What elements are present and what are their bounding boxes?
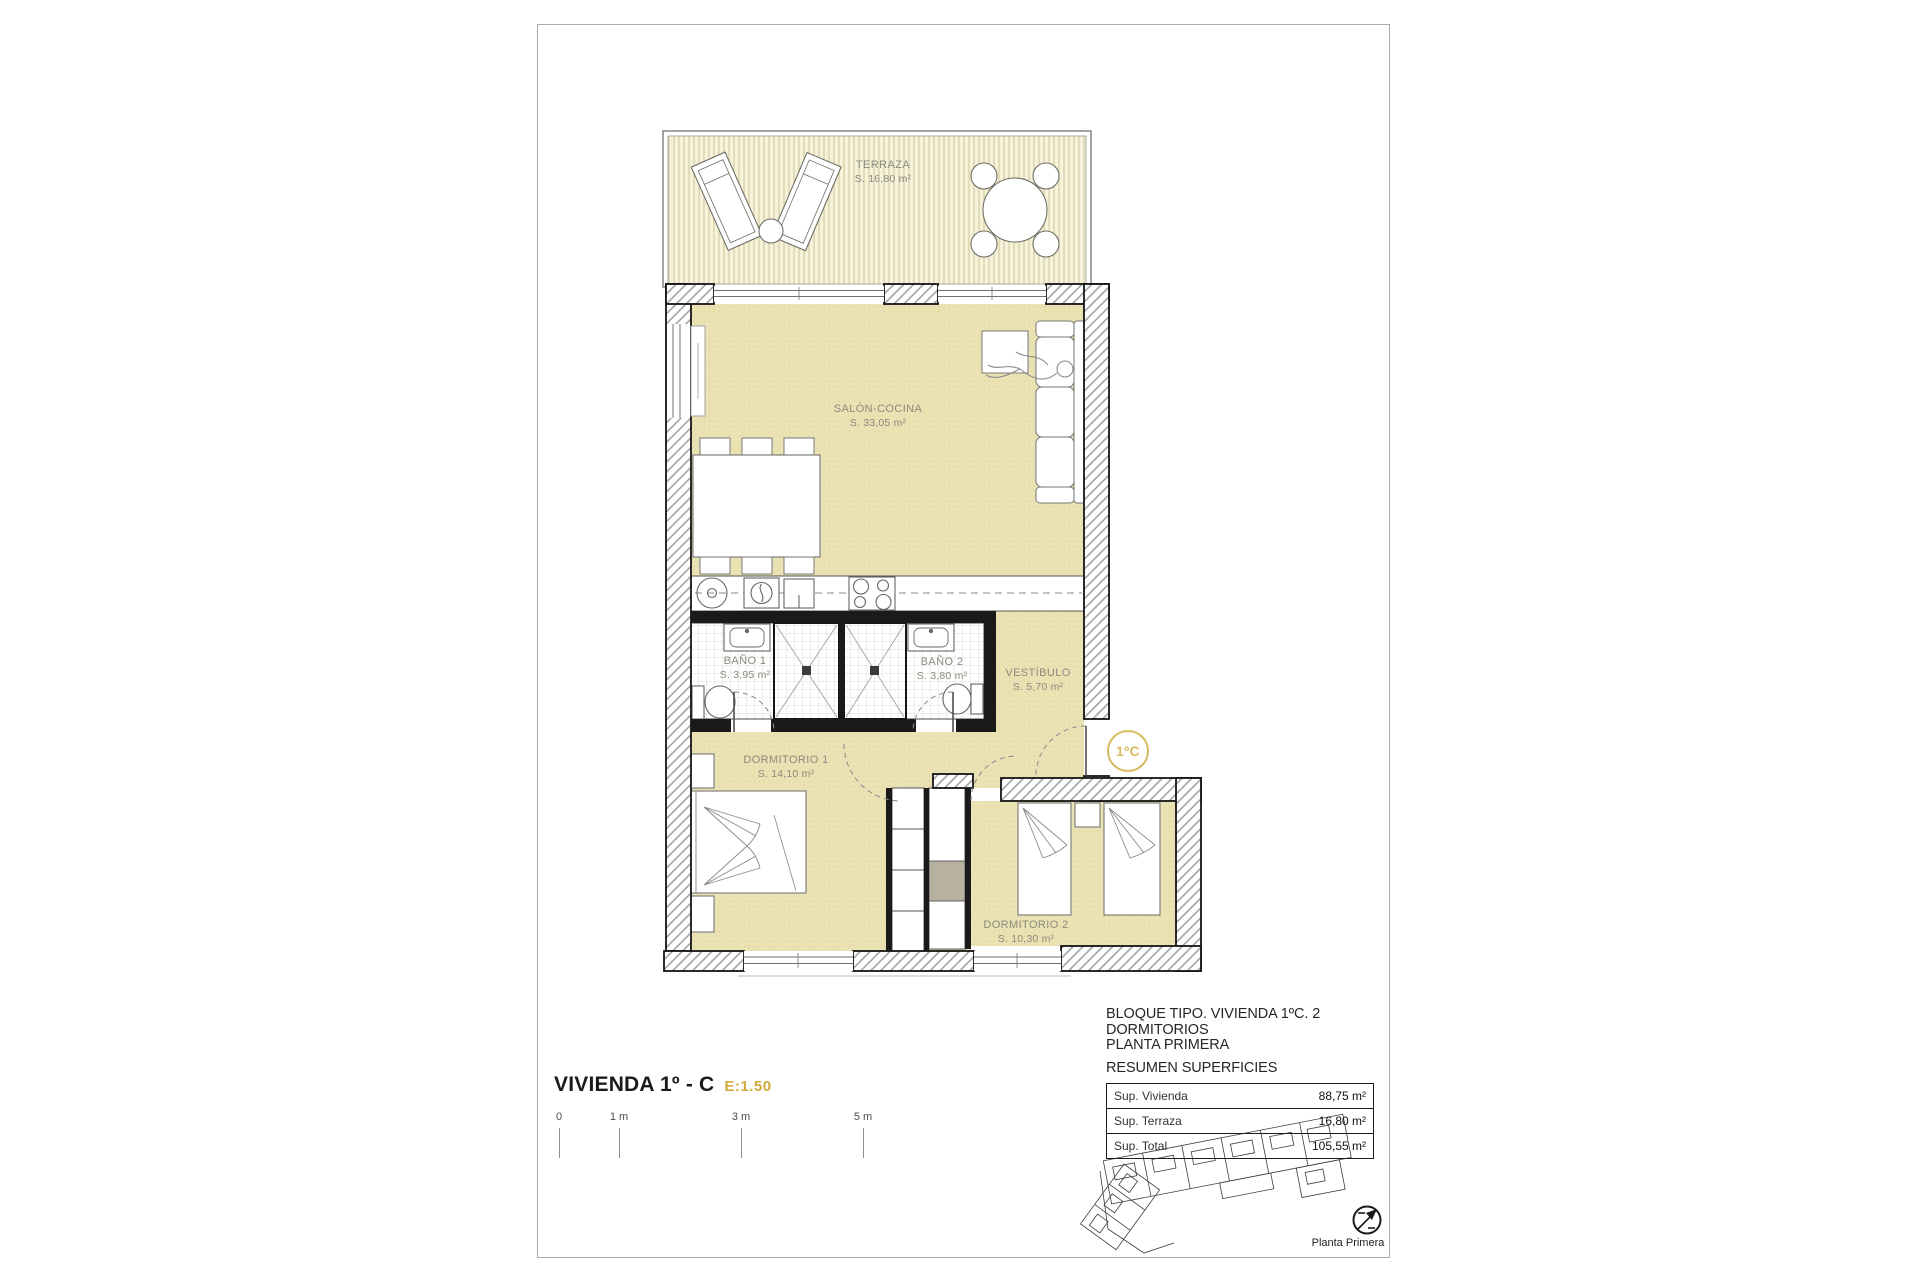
title-block: VIVIENDA 1º - CE:1.50 [554,1073,772,1097]
scale-bar: 0 1 m 3 m 5 m [538,1111,938,1161]
room-label-bano-2: BAÑO 2 S. 3,80 m² [917,656,967,683]
double-bed [684,791,806,893]
room-label-dormitorio-2: DORMITORIO 2 S. 10,30 m² [983,919,1068,946]
shower-icon [844,623,906,719]
sofa [1036,321,1086,503]
room-label-salon-cocina: SALÓN-COCINA S. 33,05 m² [834,403,923,430]
kitchen-counter [691,576,1084,611]
single-bed [1018,803,1071,915]
table-row: Sup. Terraza 16,80 m² [1106,1108,1374,1134]
summary-heading-2: PLANTA PRIMERA [1106,1038,1374,1054]
room-label-dormitorio-1: DORMITORIO 1 S. 14,10 m² [743,754,828,781]
bathroom-sink-icon [724,624,770,651]
summary-block: BLOQUE TIPO. VIVIENDA 1ºC. 2 DORMITORIOS… [1106,1007,1374,1159]
site-plan-caption: Planta Primera [1293,1237,1403,1249]
single-bed [1104,803,1160,915]
terrace-area [663,131,1091,287]
surface-table: Sup. Vivienda 88,75 m² Sup. Terraza 16,8… [1106,1083,1374,1159]
sheet-canvas: TERRAZA S. 16,80 m² SALÓN-COCINA S. 33,0… [0,0,1920,1280]
toilet-icon [943,684,983,714]
summary-heading-1: BLOQUE TIPO. VIVIENDA 1ºC. 2 DORMITORIOS [1106,1007,1374,1038]
unit-badge: 1ºC [1107,730,1149,772]
toilet-icon [692,686,735,719]
shower-icon [774,623,839,719]
table-row: Sup. Vivienda 88,75 m² [1106,1083,1374,1109]
table-row: Sup. Total 105,55 m² [1106,1133,1374,1159]
side-table [759,219,783,243]
page-title: VIVIENDA 1º - C [554,1073,714,1096]
drawing-scale: E:1.50 [724,1078,771,1095]
room-label-bano-1: BAÑO 1 S. 3,95 m² [720,655,770,682]
bathroom-sink-icon [908,624,954,651]
plan-sheet-page: TERRAZA S. 16,80 m² SALÓN-COCINA S. 33,0… [537,24,1390,1258]
north-arrow-icon [1354,1207,1381,1234]
room-label-terraza: TERRAZA S. 16,80 m² [855,159,911,186]
dining-table [693,455,820,557]
nightstand [1075,803,1100,827]
room-label-vestibulo: VESTÍBULO S. 5,70 m² [1005,667,1070,694]
summary-heading-3: RESUMEN SUPERFICIES [1106,1061,1374,1077]
